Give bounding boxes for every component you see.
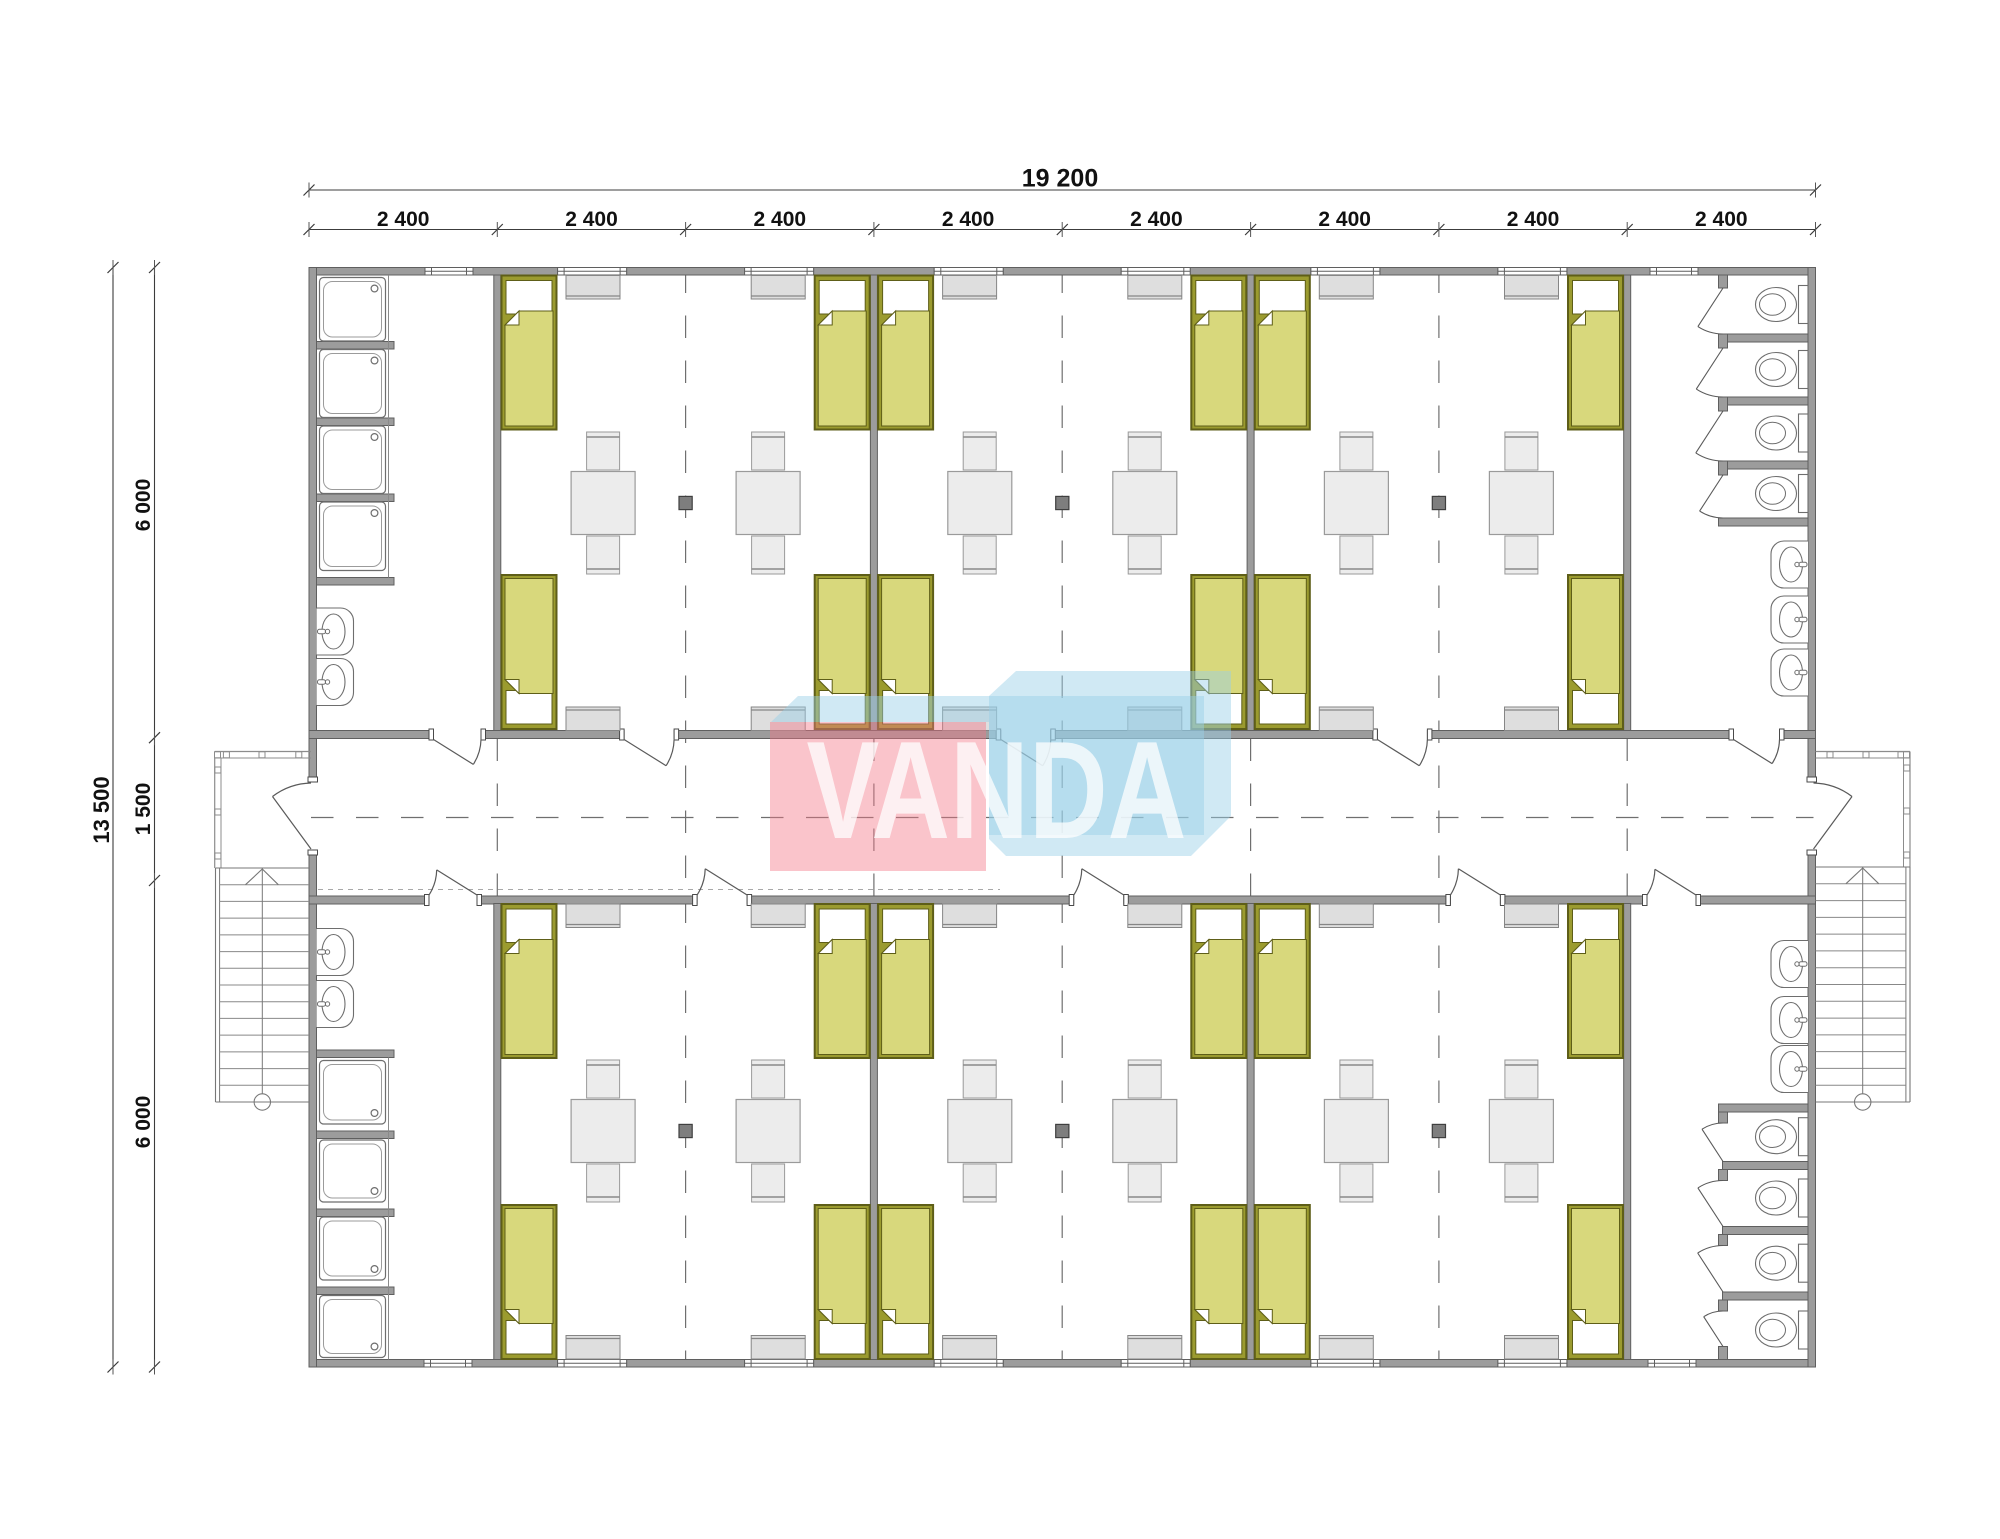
- svg-text:2 400: 2 400: [1318, 208, 1371, 231]
- svg-text:2 400: 2 400: [754, 208, 807, 231]
- svg-text:6 000: 6 000: [132, 479, 155, 532]
- svg-text:2 400: 2 400: [942, 208, 995, 231]
- svg-text:2 400: 2 400: [1695, 208, 1748, 231]
- svg-text:13 500: 13 500: [89, 776, 114, 843]
- svg-text:2 400: 2 400: [1507, 208, 1560, 231]
- svg-text:19 200: 19 200: [1022, 165, 1098, 193]
- svg-text:2 400: 2 400: [565, 208, 618, 231]
- svg-text:1 500: 1 500: [132, 783, 155, 836]
- svg-text:VANDA: VANDA: [807, 713, 1187, 868]
- svg-text:2 400: 2 400: [377, 208, 430, 231]
- svg-text:2 400: 2 400: [1130, 208, 1183, 231]
- svg-text:6 000: 6 000: [132, 1096, 155, 1149]
